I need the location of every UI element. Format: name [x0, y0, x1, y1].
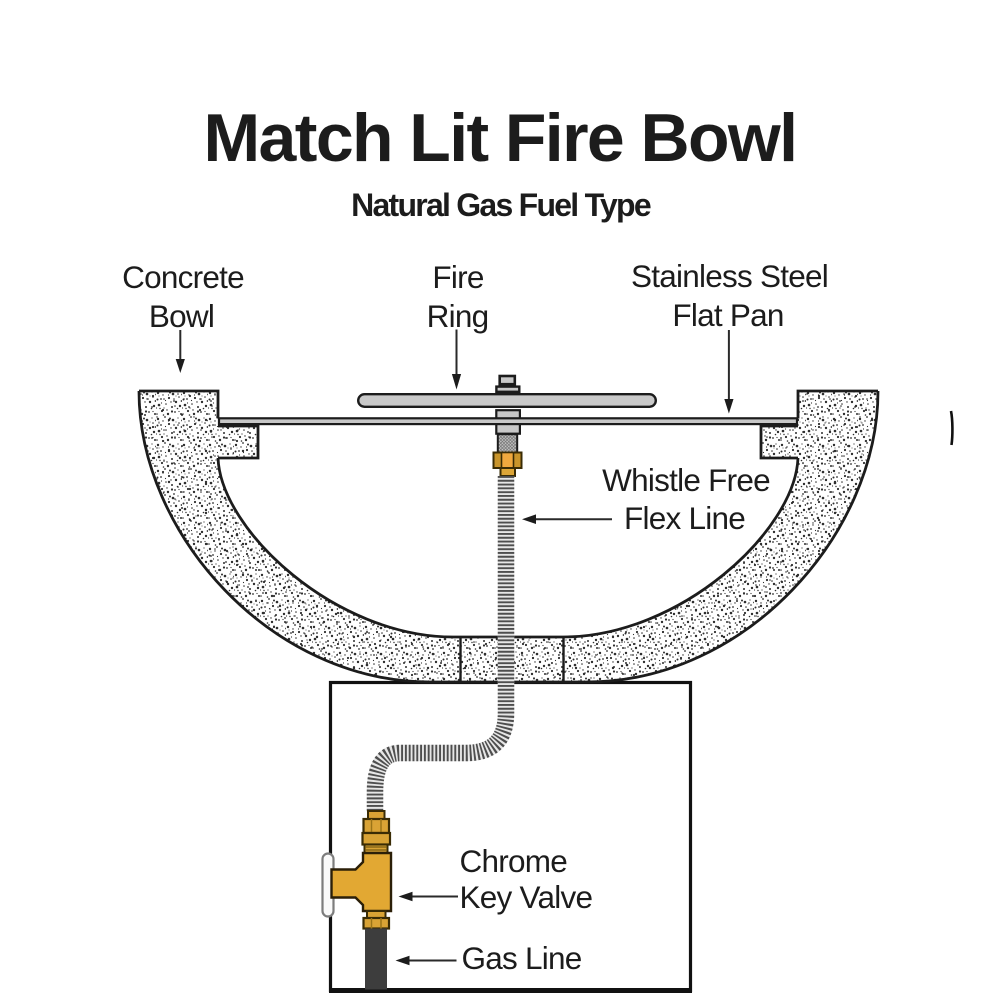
svg-text:Ring: Ring — [427, 298, 489, 334]
svg-text:Stainless Steel: Stainless Steel — [631, 258, 828, 294]
svg-text:Flex Line: Flex Line — [624, 500, 745, 536]
svg-text:Key Valve: Key Valve — [460, 879, 593, 915]
svg-text:Chrome: Chrome — [460, 843, 568, 879]
svg-text:Bowl: Bowl — [149, 298, 214, 334]
svg-text:Gas Line: Gas Line — [462, 940, 582, 976]
svg-text:Natural Gas Fuel Type: Natural Gas Fuel Type — [351, 187, 651, 223]
svg-text:Fire: Fire — [432, 259, 483, 295]
svg-text:Whistle Free: Whistle Free — [602, 462, 770, 498]
svg-text:Match Lit Fire Bowl: Match Lit Fire Bowl — [204, 100, 797, 176]
svg-text:Concrete: Concrete — [122, 259, 244, 295]
svg-text:Flat Pan: Flat Pan — [672, 297, 783, 333]
